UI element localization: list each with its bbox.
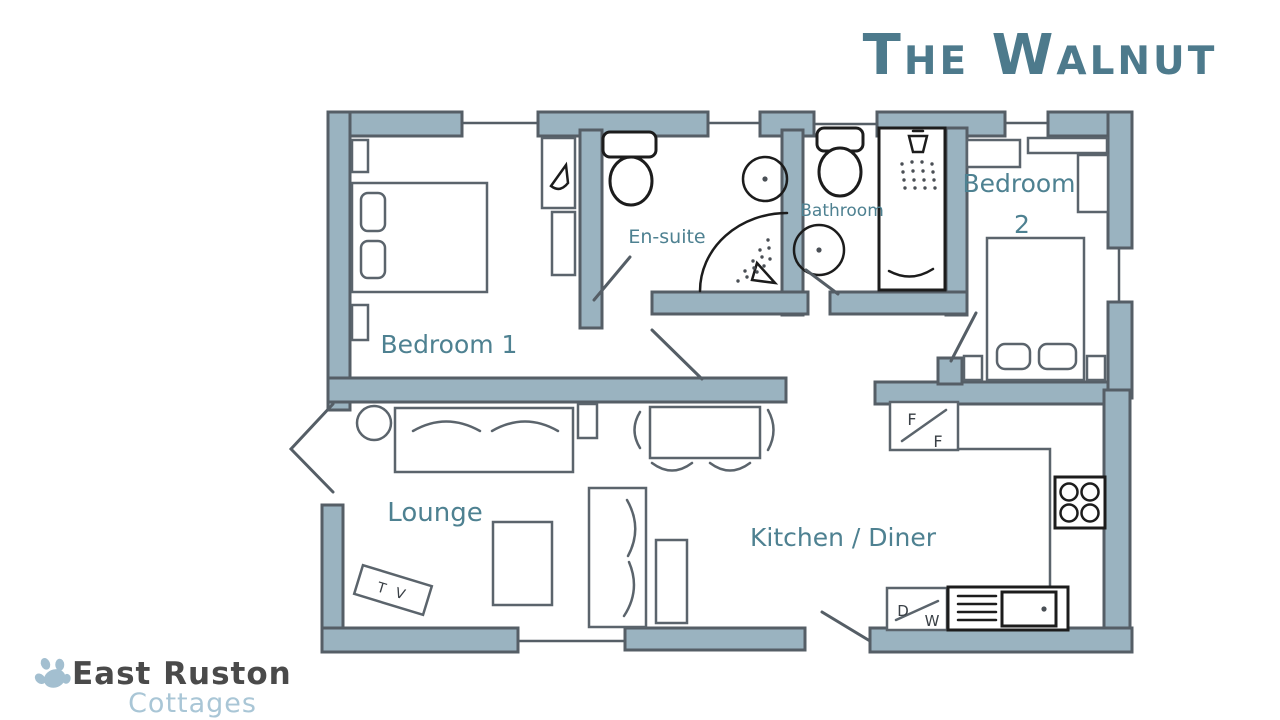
chair (652, 463, 692, 471)
wall-segment (328, 112, 350, 410)
kitchen-fittings: F F D W (887, 402, 1105, 630)
side-table (578, 404, 597, 438)
tv-unit: T V (354, 565, 432, 615)
dishwasher-label-left: D (897, 602, 909, 620)
sink-tap (1041, 606, 1046, 611)
coffee-table (493, 522, 552, 605)
wall-segment (322, 628, 518, 652)
door-bedroom1 (652, 330, 702, 379)
bedroom1-furniture (352, 138, 575, 340)
side-table (357, 406, 391, 440)
room-label-kitchen: Kitchen / Diner (750, 523, 937, 552)
wall-segment (580, 130, 602, 328)
door-kitchen-rear (822, 612, 870, 641)
wall-segment (946, 128, 967, 315)
room-label-bedroom1: Bedroom 1 (381, 330, 518, 359)
bedside-table (352, 305, 368, 340)
room-label-bedroom2-number: 2 (1014, 210, 1030, 239)
dining-furniture (635, 407, 774, 471)
pillow (361, 193, 385, 231)
ensuite-fixtures (603, 132, 787, 291)
logo-name: East Ruston (72, 656, 292, 692)
wall-segment (870, 628, 1132, 652)
pillow (997, 344, 1030, 369)
toilet-bowl (610, 157, 652, 205)
shelf-unit (967, 140, 1020, 167)
toilet-bowl (819, 148, 861, 196)
hob (1055, 477, 1105, 528)
bedside-table (352, 140, 368, 172)
wall-segment (782, 130, 803, 315)
pillow (1039, 344, 1076, 369)
basin-tap (762, 176, 767, 181)
bedside-table (1087, 356, 1105, 380)
floor-plan: T V F F D W (0, 0, 1280, 720)
corner-shower (700, 213, 787, 291)
wall-segment (830, 292, 967, 314)
dining-table (650, 407, 760, 458)
chair (710, 463, 750, 471)
room-label-lounge: Lounge (387, 498, 482, 528)
wall-segment (1104, 390, 1130, 652)
basin-tap (816, 247, 821, 252)
chest-of-drawers (552, 212, 575, 275)
sink-bowl (1002, 592, 1056, 626)
paw-icon (27, 651, 74, 697)
room-label-bathroom: Bathroom (800, 201, 884, 221)
door-entrance (291, 404, 333, 492)
fridge-freezer-label-bottom: F (933, 432, 942, 451)
chair (635, 412, 641, 448)
wall-segment (328, 378, 786, 402)
tall-unit (589, 488, 646, 627)
toilet-cistern (603, 132, 656, 157)
wardrobe (1078, 155, 1108, 212)
plan-title: The Walnut (863, 23, 1218, 88)
door-bedroom2 (951, 313, 976, 361)
wall-segment (1108, 112, 1132, 248)
shelf-unit (1028, 138, 1107, 153)
logo-tagline: Cottages (128, 688, 257, 719)
wall-segment (625, 628, 805, 650)
wall-segment (652, 292, 808, 314)
pillow (361, 241, 385, 278)
wall-segment (1108, 302, 1132, 398)
wall-segment (875, 382, 1108, 404)
wardrobe (542, 138, 575, 208)
bedside-table (964, 356, 982, 380)
fridge-freezer-label-top: F (907, 410, 916, 429)
logo: East Ruston Cottages (27, 651, 291, 719)
floor-plan-page: T V F F D W (0, 0, 1280, 720)
room-label-ensuite: En-suite (628, 226, 705, 248)
cabinet (656, 540, 687, 623)
worktop-edge (958, 449, 1050, 587)
room-label-bedroom2: Bedroom (962, 169, 1075, 198)
sofa (395, 408, 573, 472)
dishwasher-label-right: W (925, 612, 940, 630)
chair (768, 410, 774, 450)
